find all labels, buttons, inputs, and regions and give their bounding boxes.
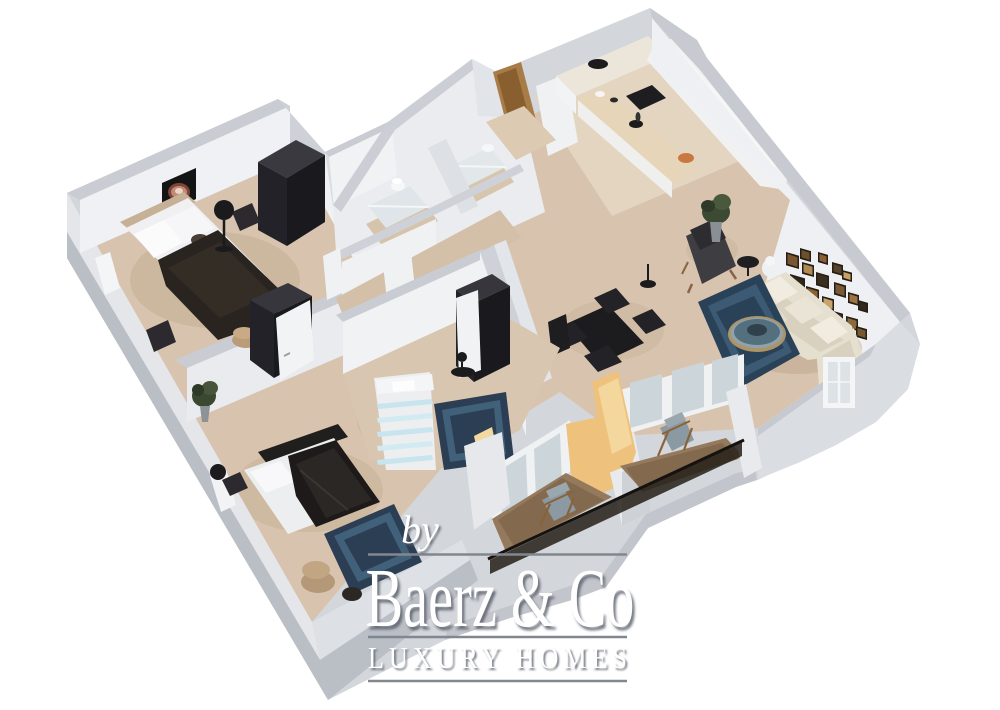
svg-text:LUXURY HOMES: LUXURY HOMES (368, 641, 632, 676)
svg-text:by: by (401, 507, 439, 552)
svg-text:Baerz & Co: Baerz & Co (366, 552, 635, 645)
